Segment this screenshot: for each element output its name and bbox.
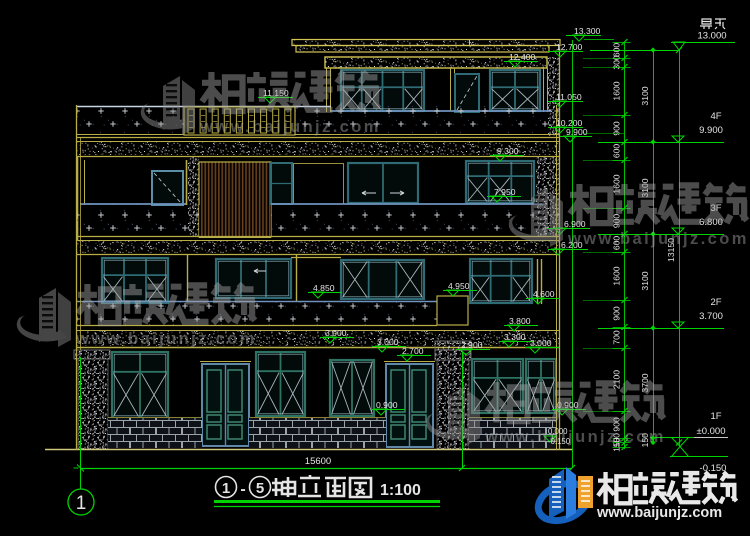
svg-text:9.900: 9.900 [699,125,723,136]
svg-text:13.000: 13.000 [697,31,726,42]
svg-text:3.700: 3.700 [699,311,723,322]
svg-text:1600: 1600 [612,266,622,285]
svg-text:1F: 1F [710,411,721,422]
svg-text:www.baijunjz.com: www.baijunjz.com [596,505,722,521]
svg-text:600: 600 [612,144,622,159]
svg-text:www.baijunjz.com: www.baijunjz.com [484,428,666,446]
svg-text:5: 5 [256,480,264,497]
svg-text:www.baijunjz.com: www.baijunjz.com [567,230,749,248]
svg-text:www.baijunjz.com: www.baijunjz.com [75,330,257,348]
svg-text:1:100: 1:100 [380,482,421,499]
svg-text:900: 900 [612,306,622,321]
svg-text:2F: 2F [710,297,721,308]
svg-text:600: 600 [612,43,622,58]
svg-text:1600: 1600 [612,81,622,100]
svg-text:700: 700 [612,330,622,345]
svg-text:15600: 15600 [305,456,331,467]
svg-text:-: - [240,481,245,498]
svg-text:±0.000: ±0.000 [697,426,726,437]
svg-text:3100: 3100 [640,86,650,105]
svg-text:1: 1 [76,493,87,514]
svg-text:-0.150: -0.150 [700,463,727,474]
svg-text:1: 1 [222,480,230,497]
svg-text:3100: 3100 [640,271,650,290]
svg-text:4F: 4F [710,111,721,122]
svg-text:www.baijunjz.com: www.baijunjz.com [199,118,381,136]
